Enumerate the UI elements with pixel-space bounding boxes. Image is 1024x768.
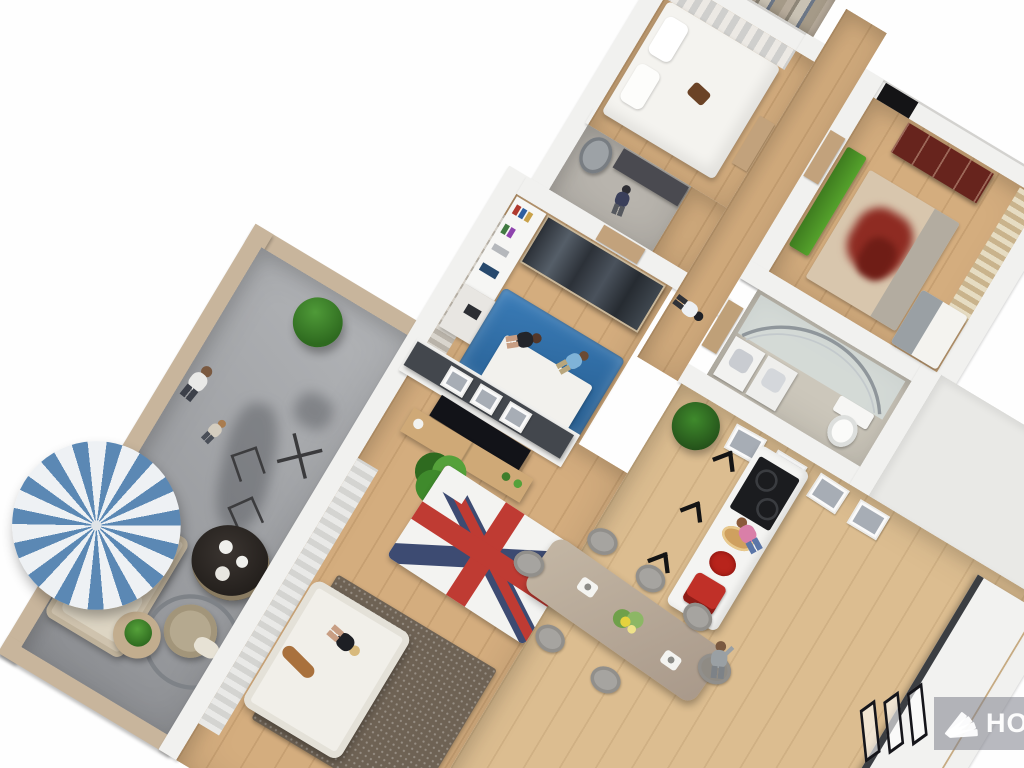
bed-tray-object (686, 81, 712, 106)
brown-bolster (280, 643, 318, 681)
watermark-bar: HOM (934, 697, 1024, 750)
place-setting (576, 576, 600, 599)
apartment-plan (0, 0, 1024, 768)
flower-centerpiece (605, 600, 651, 646)
place-setting (659, 649, 683, 672)
red-bowl (705, 546, 741, 581)
homestyler-fan-icon (946, 704, 982, 744)
cup (234, 554, 251, 571)
plate (212, 564, 232, 584)
cup (216, 538, 235, 557)
floorplan-render: HOM (0, 0, 1024, 768)
watermark-text: HOM (986, 708, 1024, 739)
